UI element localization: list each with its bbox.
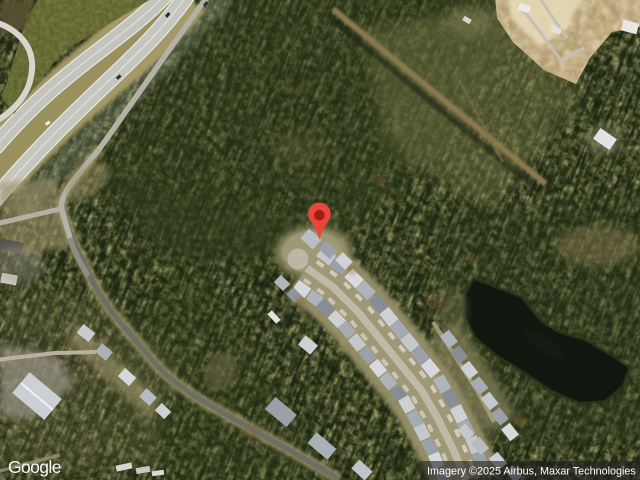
svg-text:Imagery ©2025 Airbus, Maxar Te: Imagery ©2025 Airbus, Maxar Technologies: [427, 466, 636, 478]
svg-text:Google: Google: [8, 457, 61, 477]
